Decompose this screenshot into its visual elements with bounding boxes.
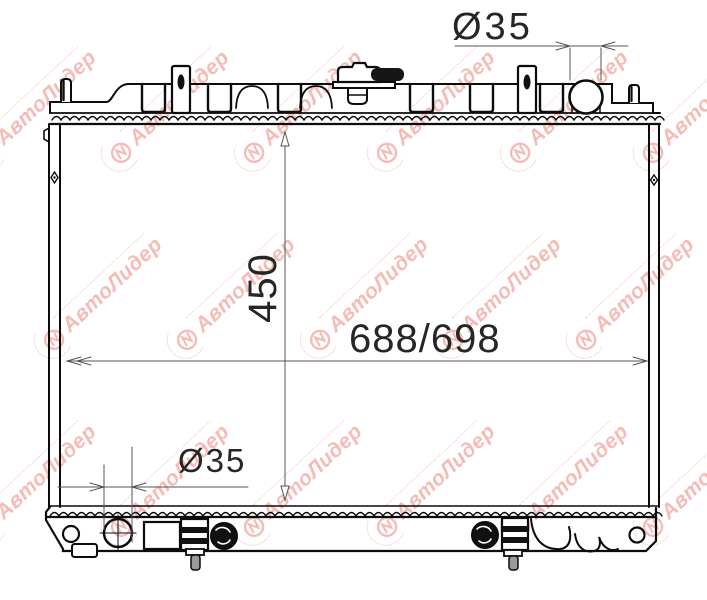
filler-neck xyxy=(348,88,367,104)
bottom-left-hole xyxy=(63,526,79,542)
top-right-stud xyxy=(629,85,639,103)
right-side-bracket xyxy=(649,124,659,507)
bottom-right-hole xyxy=(630,528,645,543)
dim-label-width: 688/698 xyxy=(349,319,501,359)
top-tank xyxy=(50,63,660,114)
cap-handle xyxy=(371,68,404,81)
tank-slot xyxy=(142,84,165,112)
core-bottom-serration xyxy=(50,513,662,517)
upper-bracket-right xyxy=(518,66,536,113)
dim-label-top-diameter: Ø35 xyxy=(452,8,533,46)
left-side-bracket xyxy=(44,124,60,507)
bottom-left-tab xyxy=(72,544,97,557)
tank-slot xyxy=(540,84,563,112)
dome-arc xyxy=(236,86,268,108)
radiator-line-drawing xyxy=(0,0,707,600)
dim-label-height: 450 xyxy=(243,240,283,336)
hose-contour xyxy=(575,534,618,551)
top-left-stud xyxy=(61,79,71,102)
tank-slot xyxy=(208,84,231,112)
core-top-serration xyxy=(52,117,664,121)
tank-slot xyxy=(470,84,493,112)
mounting-stud xyxy=(509,556,518,570)
inlet-pipe-circle xyxy=(570,81,603,114)
hose-contour xyxy=(531,519,570,549)
mounting-stud xyxy=(191,555,200,570)
radiator-cap xyxy=(333,63,404,104)
upper-bracket-left xyxy=(172,66,190,113)
tank-slot xyxy=(278,84,301,112)
outlet-fitting-right xyxy=(472,518,528,570)
outlet-fitting-left xyxy=(144,519,237,570)
dome-arc xyxy=(300,86,332,108)
dim-label-bottom-diameter: Ø35 xyxy=(178,444,246,477)
tank-slot xyxy=(410,84,433,112)
radiator-drawing-canvas: АвтоЛидерАвтоЛидерАвтоЛидерАвтоЛидерАвто… xyxy=(0,0,707,600)
drain-plug xyxy=(100,515,136,551)
